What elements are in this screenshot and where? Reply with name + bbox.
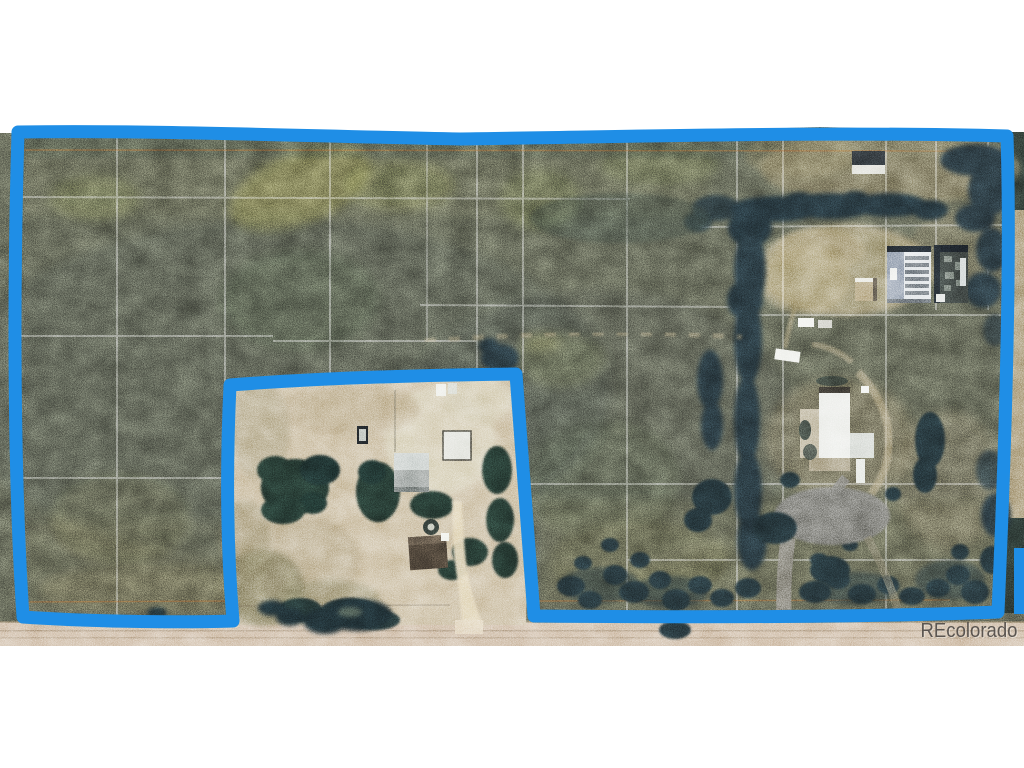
svg-text:REcolorado: REcolorado xyxy=(921,619,1018,642)
